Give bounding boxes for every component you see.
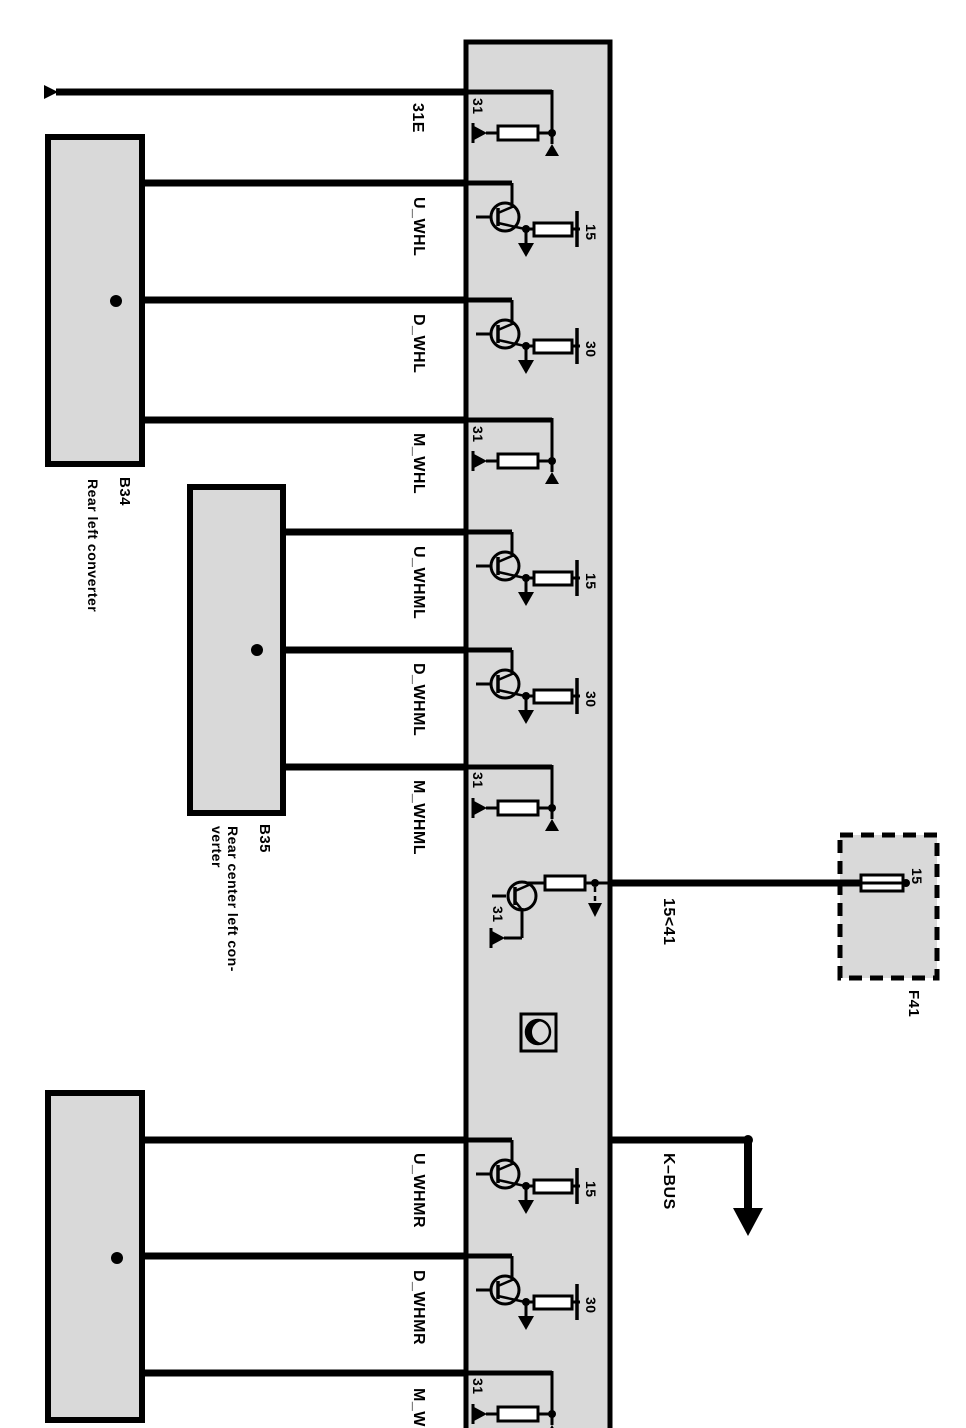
terminal-31-label: 31 [471, 772, 485, 789]
wire-31e-arrow [44, 85, 58, 99]
wire-label-d-whml: D_WHML [410, 663, 426, 736]
b35-box [190, 487, 283, 813]
wire-label-kbus: K–BUS [660, 1153, 676, 1210]
terminal-15-label: 15 [584, 1181, 598, 1198]
terminal-30-label: 30 [584, 691, 598, 708]
terminal-15-label: 15 [584, 573, 598, 590]
fuse-f41 [861, 875, 910, 891]
b34-name-label: Rear left converter [86, 479, 100, 612]
converter-dot [111, 1252, 123, 1264]
f41-terminal-label: 15 [910, 868, 924, 885]
b35-name-line1: Rear center left con- [226, 826, 240, 972]
wire-label-31e: 31E [409, 103, 425, 133]
b34-dot [110, 295, 122, 307]
b34-box [48, 137, 142, 464]
wiring-diagram-canvas [0, 0, 966, 1428]
terminal-30-label: 30 [584, 1297, 598, 1314]
terminal-30-label: 30 [584, 341, 598, 358]
b34-id-label: B34 [117, 477, 132, 506]
f41-box [840, 835, 937, 978]
terminal-31-label: 31 [471, 426, 485, 443]
wire-label-d-whl: D_WHL [410, 314, 426, 373]
b35-dot [251, 644, 263, 656]
wire-label-d-whmr: D_WHMR [410, 1270, 426, 1345]
f41-id-label: F41 [906, 990, 921, 1017]
wire-label-m-whmr: M_WHMR [410, 1388, 426, 1428]
wire-label-u-whl: U_WHL [410, 197, 426, 256]
wire-label-u-whml: U_WHML [410, 546, 426, 619]
main-wires [56, 92, 862, 1373]
wire-label-u-whmr: U_WHMR [410, 1153, 426, 1228]
kbus-arrow [733, 1135, 763, 1236]
wire-label-15-41: 15<41 [660, 898, 676, 945]
rear-right-converter-box [48, 1093, 142, 1420]
terminal-15-label: 15 [584, 224, 598, 241]
b35-name-line2: verter [210, 826, 224, 868]
wire-label-m-whml: M_WHML [410, 780, 426, 855]
wiring-diagram-page: 31E U_WHL D_WHL M_WHL U_WHML D_WHML M_WH… [0, 0, 966, 1428]
b35-id-label: B35 [257, 824, 272, 853]
control-module-band [466, 42, 610, 1428]
terminal-31-label: 31 [491, 906, 505, 923]
terminal-31-label: 31 [471, 98, 485, 115]
wire-label-m-whl: M_WHL [410, 433, 426, 494]
terminal-31-label: 31 [471, 1378, 485, 1395]
